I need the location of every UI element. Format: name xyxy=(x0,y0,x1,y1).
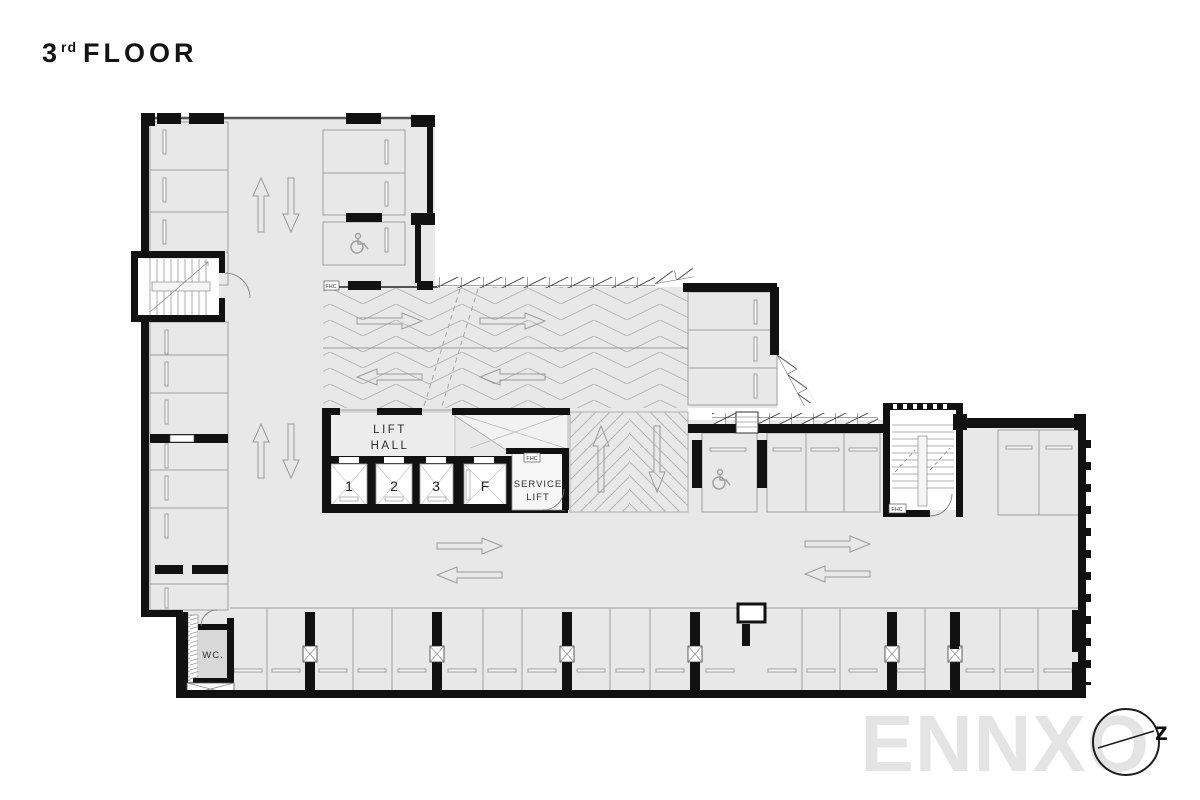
door-opening xyxy=(738,604,765,622)
service-lift-label-2: LIFT xyxy=(526,492,550,503)
lift-hall-room xyxy=(327,412,455,462)
lift-f-label: F xyxy=(481,478,490,494)
fhc-label: FHC xyxy=(526,456,537,462)
ramp-east xyxy=(570,412,688,512)
wc-label: WC. xyxy=(202,650,223,661)
lift-3-label: 3 xyxy=(432,478,440,494)
north-needle xyxy=(1098,731,1154,748)
parking-north-mid xyxy=(688,292,777,405)
mini-stair xyxy=(736,412,758,433)
sawtooth-edge xyxy=(777,350,814,406)
fhc-box: FHC xyxy=(524,453,540,462)
wall-segment xyxy=(192,565,228,574)
north-circle xyxy=(1093,709,1159,775)
floor-plan-drawing: FHC LIFT HALL 1 2 3 F SERVICE LIFT xyxy=(0,0,1200,800)
service-lift-label-1: SERVICE xyxy=(514,479,563,490)
floor-plan-page: 3rdFLOOR xyxy=(0,0,1200,800)
lift-1-label: 1 xyxy=(345,478,353,494)
column xyxy=(692,440,702,488)
stairwell-east: FHC xyxy=(883,403,963,517)
fhc-label: FHC xyxy=(891,507,902,513)
lift-hall-block: FHC LIFT HALL 1 2 3 F SERVICE LIFT xyxy=(322,408,570,513)
lift-hall-label-2: HALL xyxy=(371,440,410,452)
fhc-box: FHC xyxy=(889,504,906,513)
lift-hall-label-1: LIFT xyxy=(373,424,407,436)
column xyxy=(757,440,767,488)
north-indicator: z xyxy=(1062,682,1192,800)
sawtooth-edge xyxy=(437,277,655,288)
lift-2-label: 2 xyxy=(390,478,398,494)
wall-label-box xyxy=(170,435,194,442)
fhc-label: FHC xyxy=(325,284,336,290)
north-letter: z xyxy=(1155,716,1168,746)
ramp-central xyxy=(323,287,688,408)
wall-segment xyxy=(155,565,183,574)
